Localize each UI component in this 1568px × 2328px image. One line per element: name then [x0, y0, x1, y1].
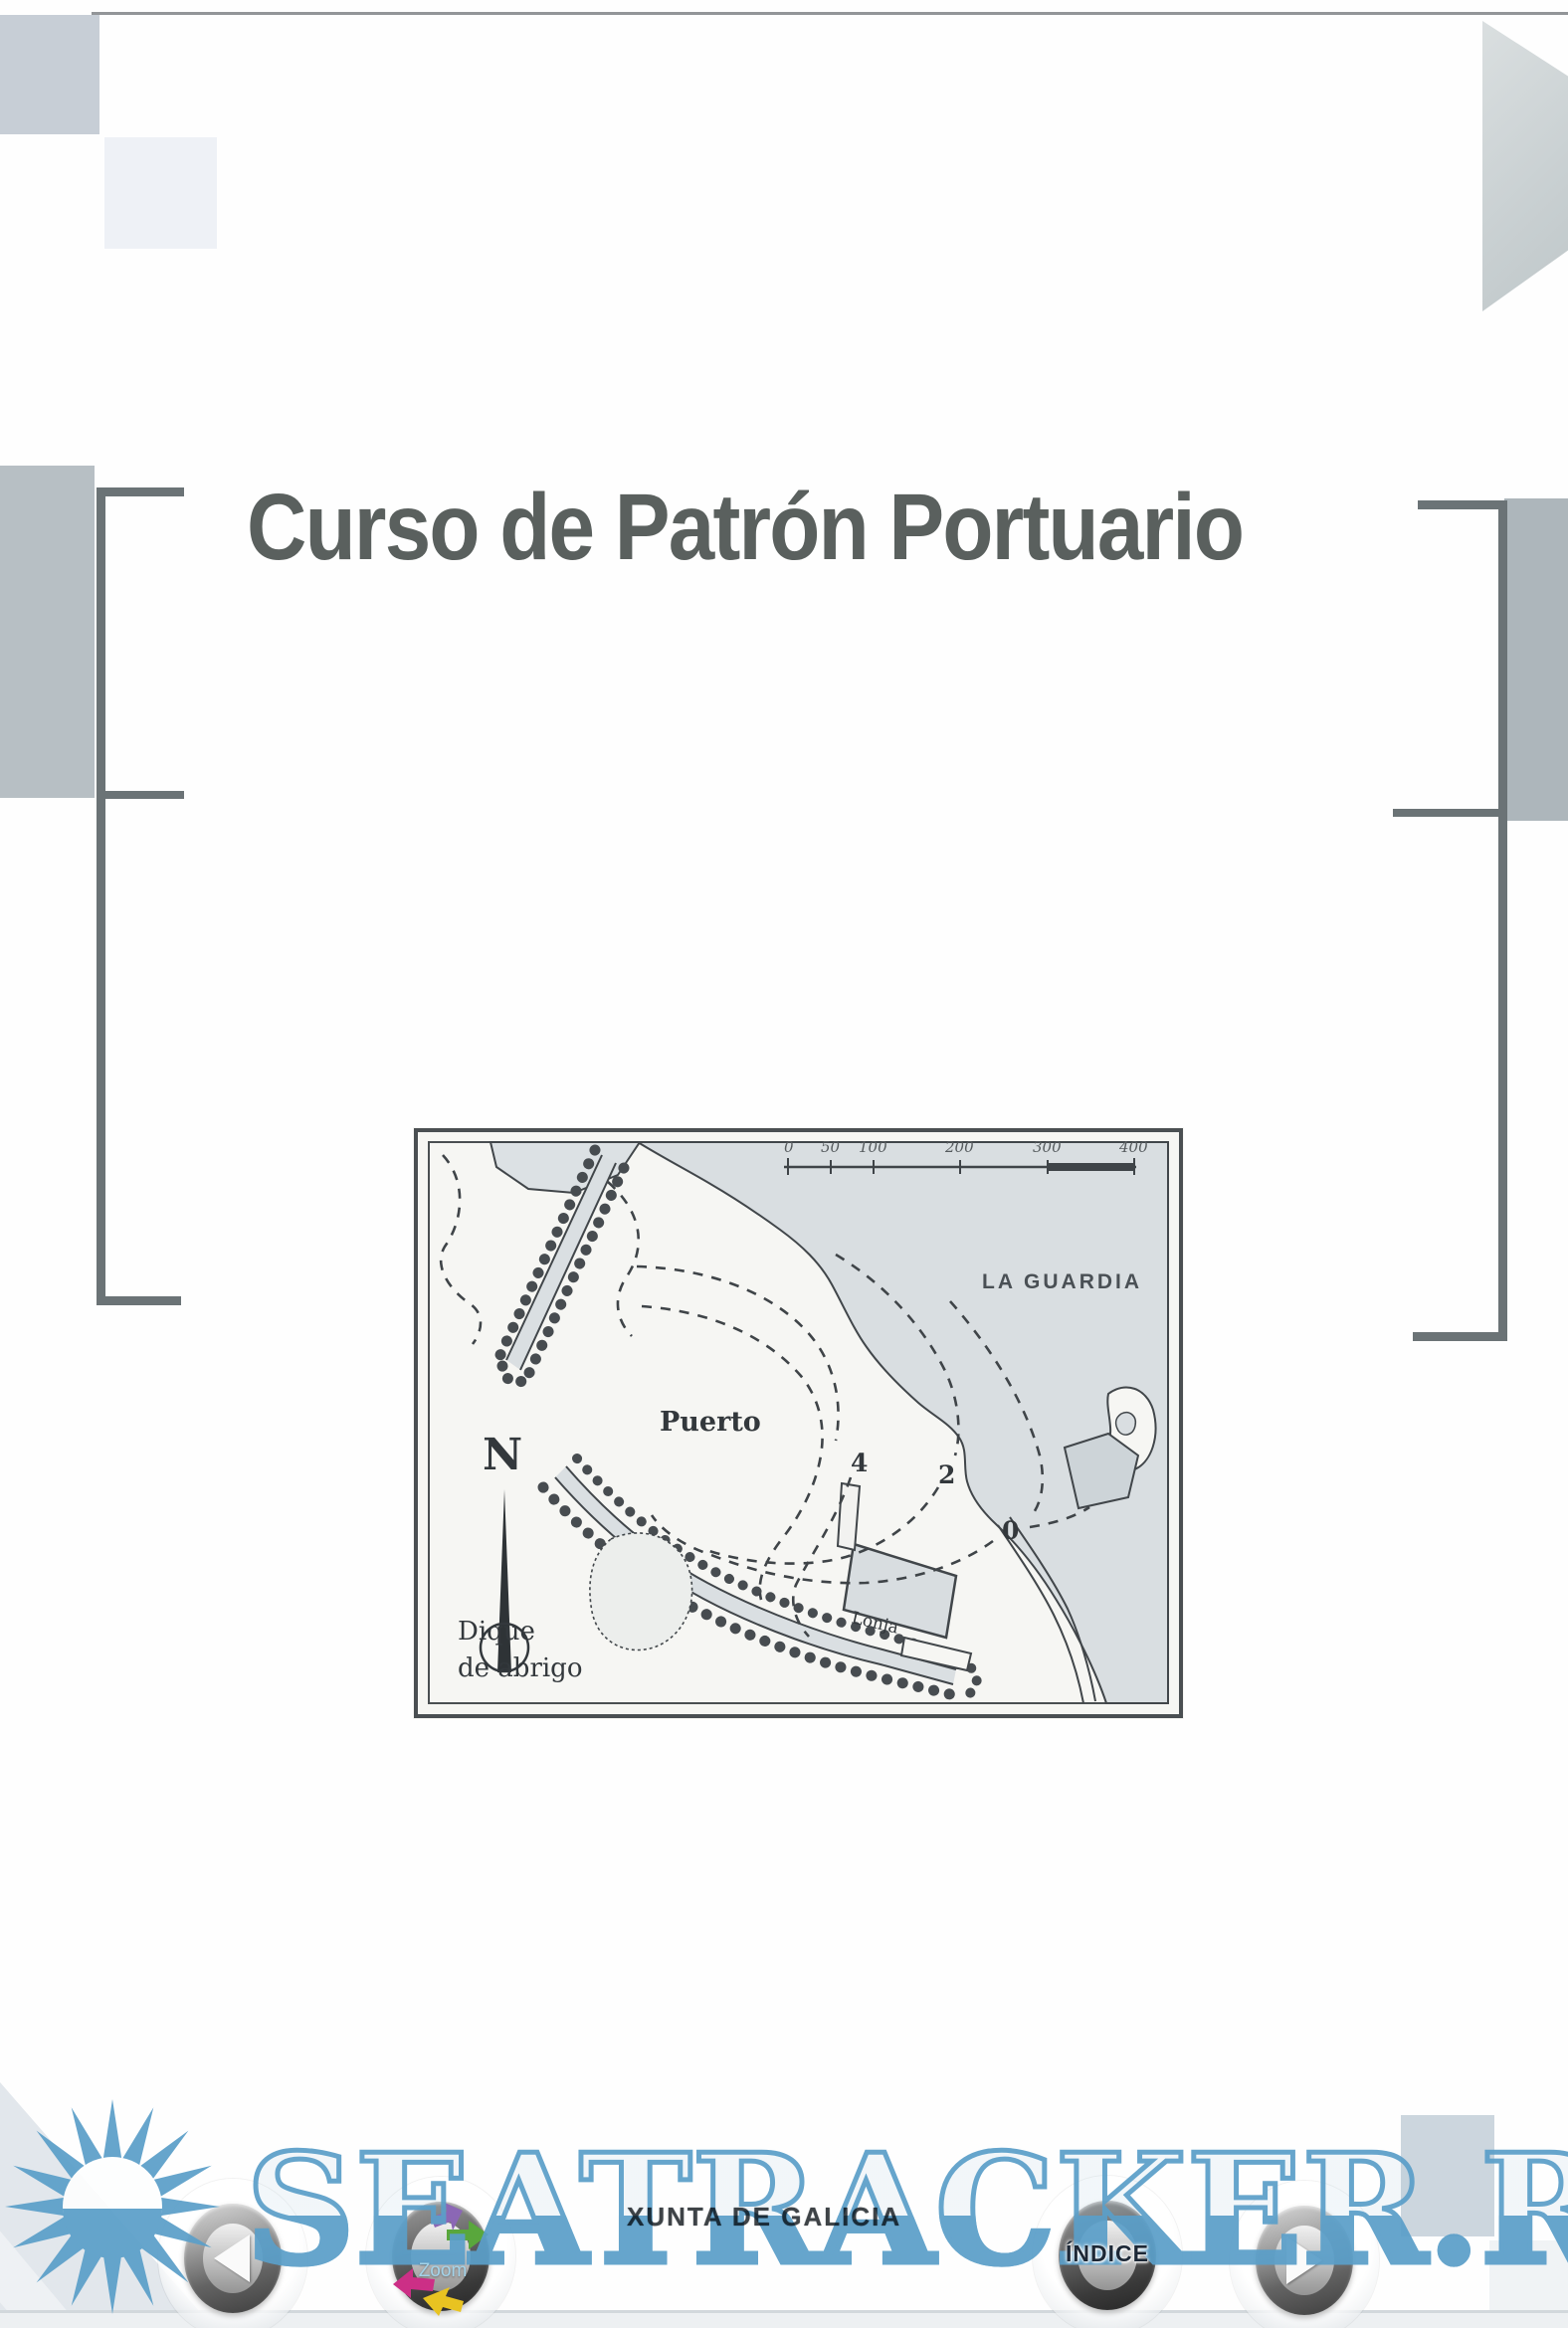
depth-label-0: 0 — [1002, 1516, 1019, 1545]
dredge-mound — [590, 1533, 692, 1650]
right-bracket-bottom-arm — [1413, 1332, 1507, 1341]
scale-bar-filled-segment — [1048, 1163, 1134, 1171]
right-gray-block — [1504, 498, 1568, 821]
bottomright-square-decoration — [1401, 2115, 1494, 2236]
label-puerto: Puerto — [660, 1407, 761, 1438]
left-bracket-mid-arm — [97, 791, 184, 799]
label-de-abrigo: de abrigo — [458, 1653, 582, 1683]
corner-square-decoration — [0, 15, 99, 134]
publisher-imprint: XUNTA DE GALICIA — [627, 2202, 901, 2232]
label-la-guardia: LA GUARDIA — [982, 1270, 1142, 1293]
next-arrow-icon[interactable] — [1286, 2236, 1322, 2284]
left-bracket — [97, 487, 105, 1305]
left-gray-block — [0, 466, 95, 798]
scanned-book-page: Curso de Patrón Portuario — [0, 0, 1568, 2328]
pier — [838, 1483, 860, 1550]
harbor-map-figure: 0 50 100 200 300 400 LA GUARDIA Puerto N… — [413, 1127, 1184, 1719]
inlet-island — [1116, 1413, 1136, 1435]
label-north: N — [483, 1430, 522, 1480]
left-bracket-top-arm — [97, 487, 184, 496]
zoom-button-label[interactable]: Zoom — [403, 2260, 483, 2282]
right-bracket — [1498, 500, 1507, 1341]
indice-button-label[interactable]: ÍNDICE — [1038, 2240, 1177, 2267]
page-top-edge — [92, 12, 1568, 15]
scale-tick-0: 0 — [784, 1138, 794, 1156]
scale-tick-300: 300 — [1033, 1138, 1062, 1156]
depth-label-2: 2 — [938, 1460, 955, 1489]
label-dique: Dique — [458, 1617, 535, 1647]
prev-arrow-icon[interactable] — [214, 2234, 250, 2282]
zoom-arrows-icon[interactable] — [371, 2187, 510, 2326]
corner-square-faint-decoration — [104, 137, 217, 249]
depth-label-4: 4 — [851, 1449, 868, 1477]
right-bracket-mid-arm — [1393, 809, 1507, 817]
scale-tick-400: 400 — [1118, 1138, 1148, 1156]
scale-tick-200: 200 — [944, 1138, 974, 1156]
right-bracket-top-arm — [1418, 500, 1507, 509]
scale-tick-50: 50 — [821, 1138, 841, 1156]
page-title: Curso de Patrón Portuario — [247, 474, 1243, 582]
left-bracket-bottom-arm — [97, 1296, 181, 1305]
flag-decoration — [1482, 21, 1568, 311]
scale-tick-100: 100 — [859, 1138, 887, 1156]
